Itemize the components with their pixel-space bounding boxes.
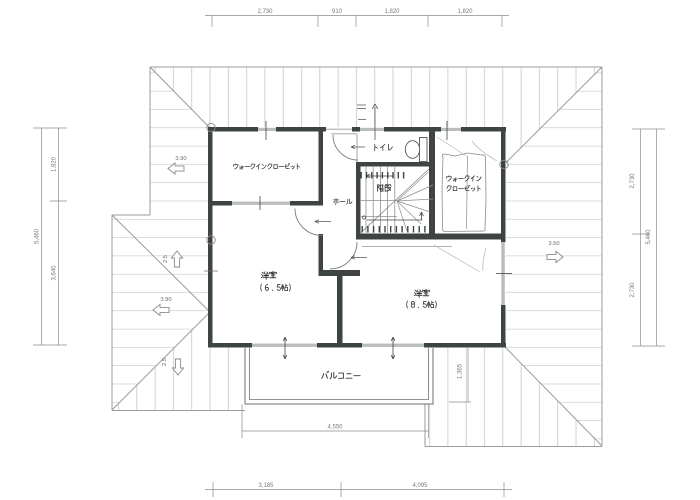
svg-text:1,365: 1,365 [458,363,464,379]
svg-text:5,460: 5,460 [35,228,41,244]
svg-text:2.5: 2.5 [163,255,169,263]
svg-text:1,820: 1,820 [457,9,473,15]
svg-text:5,460: 5,460 [646,229,652,245]
svg-text:4,095: 4,095 [412,483,428,489]
svg-text:2,730: 2,730 [630,173,636,189]
svg-text:910: 910 [332,9,343,15]
svg-text:3.90: 3.90 [175,156,186,162]
svg-text:4,550: 4,550 [327,425,343,431]
svg-text:2.5: 2.5 [162,358,168,366]
svg-text:3,185: 3,185 [258,483,274,489]
svg-text:3,640: 3,640 [52,265,58,281]
svg-text:3.50: 3.50 [548,241,559,247]
svg-text:1,820: 1,820 [52,156,58,172]
svg-text:2,730: 2,730 [630,282,636,298]
svg-text:3.90: 3.90 [160,297,171,303]
svg-text:1,820: 1,820 [384,9,400,15]
svg-text:2,730: 2,730 [257,9,273,15]
